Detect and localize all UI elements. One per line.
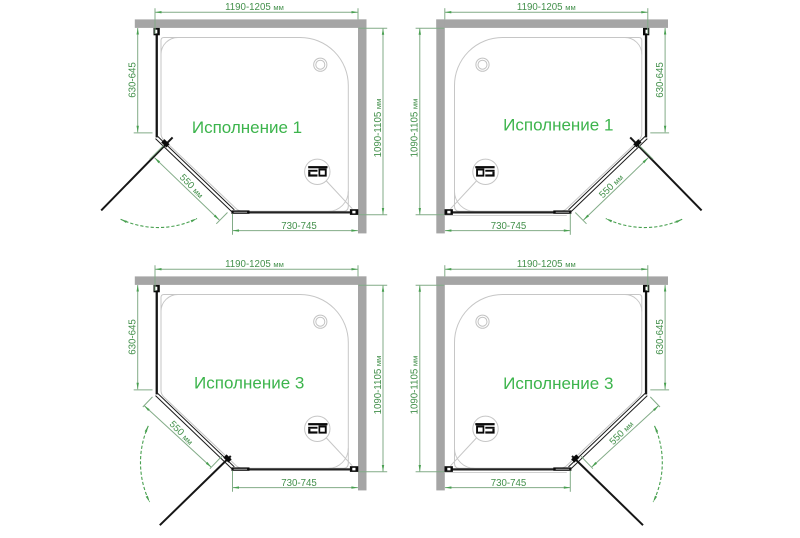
svg-text:730-745: 730-745 bbox=[491, 478, 527, 489]
svg-text:730-745: 730-745 bbox=[491, 221, 527, 232]
svg-text:1190-1205 мм: 1190-1205 мм bbox=[517, 259, 576, 270]
svg-text:Исполнение 3: Исполнение 3 bbox=[194, 373, 304, 392]
svg-text:730-745: 730-745 bbox=[281, 478, 317, 489]
svg-text:630-645: 630-645 bbox=[128, 319, 139, 355]
svg-text:630-645: 630-645 bbox=[655, 62, 666, 98]
svg-text:1190-1205 мм: 1190-1205 мм bbox=[225, 259, 284, 270]
svg-text:730-745: 730-745 bbox=[281, 221, 317, 232]
svg-text:630-645: 630-645 bbox=[128, 62, 139, 98]
svg-text:1090-1105 мм: 1090-1105 мм bbox=[410, 356, 421, 415]
svg-text:630-645: 630-645 bbox=[655, 319, 666, 355]
svg-text:1090-1105 мм: 1090-1105 мм bbox=[410, 99, 421, 158]
svg-text:Исполнение 1: Исполнение 1 bbox=[503, 116, 613, 135]
svg-text:1190-1205 мм: 1190-1205 мм bbox=[225, 2, 284, 13]
svg-text:1190-1205 мм: 1190-1205 мм bbox=[517, 2, 576, 13]
svg-text:1090-1105 мм: 1090-1105 мм bbox=[373, 356, 384, 415]
svg-text:Исполнение 1: Исполнение 1 bbox=[192, 118, 302, 137]
svg-text:1090-1105 мм: 1090-1105 мм bbox=[373, 99, 384, 158]
svg-text:Исполнение 3: Исполнение 3 bbox=[503, 374, 613, 393]
